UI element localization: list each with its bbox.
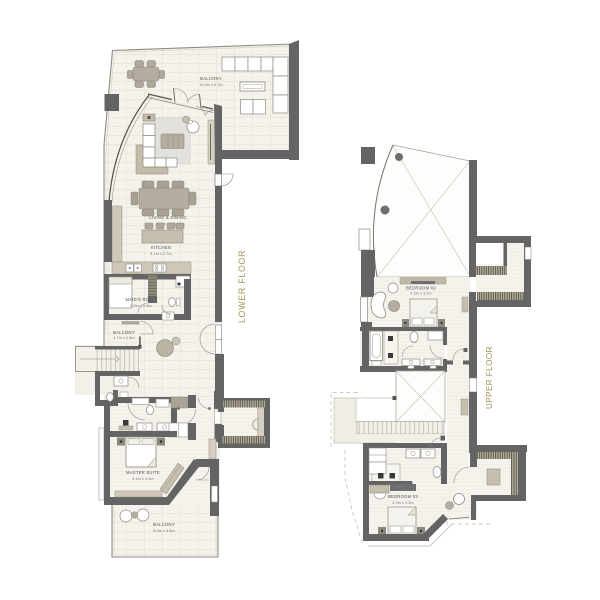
svg-text:5.4m x 3.6m: 5.4m x 3.6m [153,529,174,533]
svg-text:LOWER FLOOR: LOWER FLOOR [237,250,247,323]
svg-text:BEDROOM 02: BEDROOM 02 [406,286,436,291]
svg-text:1.7m x 1.5m: 1.7m x 1.5m [113,336,134,340]
svg-text:BEDROOM 03: BEDROOM 03 [388,494,418,499]
svg-text:BALCONY: BALCONY [113,330,135,335]
svg-text:4.0m x 3.3m: 4.0m x 3.3m [392,501,413,505]
svg-text:UPPER FLOOR: UPPER FLOOR [485,346,494,409]
svg-text:MASTER SUITE: MASTER SUITE [126,470,160,475]
svg-text:11.0m x 5.7m: 11.0m x 5.7m [199,83,222,87]
svg-text:BALCONY: BALCONY [153,522,175,527]
svg-text:KITCHEN: KITCHEN [151,245,171,250]
svg-text:4.5m x 3.2m: 4.5m x 3.2m [410,292,431,296]
svg-text:BALCONY: BALCONY [200,76,222,81]
svg-text:5.1m x 2.7m: 5.1m x 2.7m [150,252,171,256]
svg-text:4.1m x 4.2m: 4.1m x 4.2m [132,477,153,481]
svg-text:LIVING & DINING: LIVING & DINING [149,215,186,220]
